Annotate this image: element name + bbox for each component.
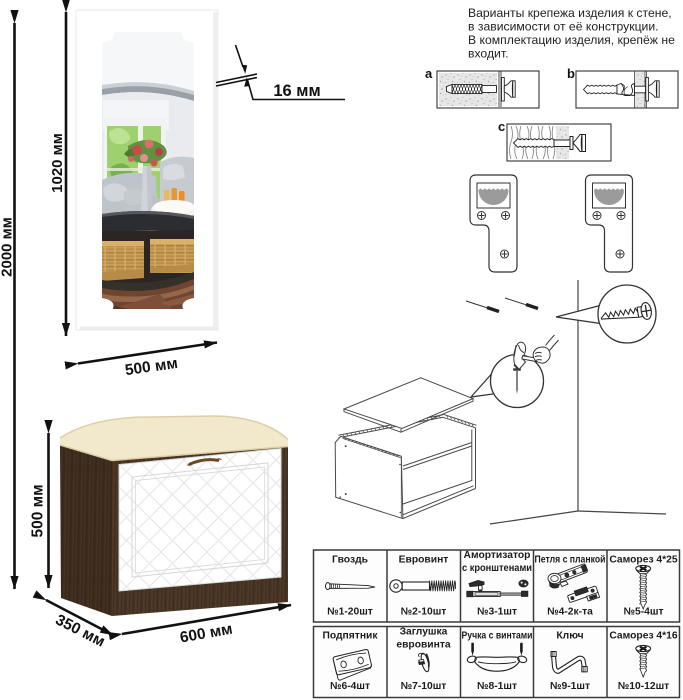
svg-text:№7-10шт: №7-10шт [401,681,447,692]
svg-text:с кронштенами: с кронштенами [462,563,532,574]
svg-text:Варианты крепежа изделия к сте: Варианты крепежа изделия к стене, [468,6,672,20]
svg-text:№3-1шт: №3-1шт [477,607,517,618]
svg-text:a: a [425,66,433,81]
svg-text:2000 мм: 2000 мм [0,217,16,277]
svg-text:500 мм: 500 мм [30,484,47,537]
svg-text:№6-4шт: №6-4шт [330,681,370,692]
svg-text:1020 мм: 1020 мм [49,133,66,193]
svg-text:В комплектацию изделия, крепёж: В комплектацию изделия, крепёж не [468,33,675,47]
svg-text:b: b [567,66,575,81]
svg-text:Саморез 4*25: Саморез 4*25 [609,555,678,566]
svg-text:Ключ: Ключ [556,631,583,642]
svg-text:Петля с планкой: Петля с планкой [535,555,606,566]
svg-text:№2-10шт: №2-10шт [401,607,447,618]
svg-text:16 мм: 16 мм [273,82,320,100]
svg-text:евровинта: евровинта [396,640,451,651]
svg-text:№8-1шт: №8-1шт [477,681,517,692]
svg-text:Гвоздь: Гвоздь [332,555,368,566]
svg-text:№10-12шт: №10-12шт [618,681,669,692]
svg-text:Заглушка: Заглушка [400,627,448,638]
svg-text:в зависимости от её конструкци: в зависимости от её конструкции. [468,20,659,34]
svg-text:Ручка с винтами: Ручка с винтами [462,631,533,642]
svg-text:c: c [498,119,505,134]
svg-text:Подпятник: Подпятник [322,631,378,642]
svg-text:№1-20шт: №1-20шт [327,607,373,618]
svg-text:№9-1шт: №9-1шт [550,681,590,692]
svg-text:Евровинт: Евровинт [399,555,449,566]
svg-text:Амортизатор: Амортизатор [464,550,531,561]
svg-text:входит.: входит. [468,47,508,61]
svg-text:№4-2к-та: №4-2к-та [547,607,593,618]
svg-text:Саморез 4*16: Саморез 4*16 [609,631,678,642]
